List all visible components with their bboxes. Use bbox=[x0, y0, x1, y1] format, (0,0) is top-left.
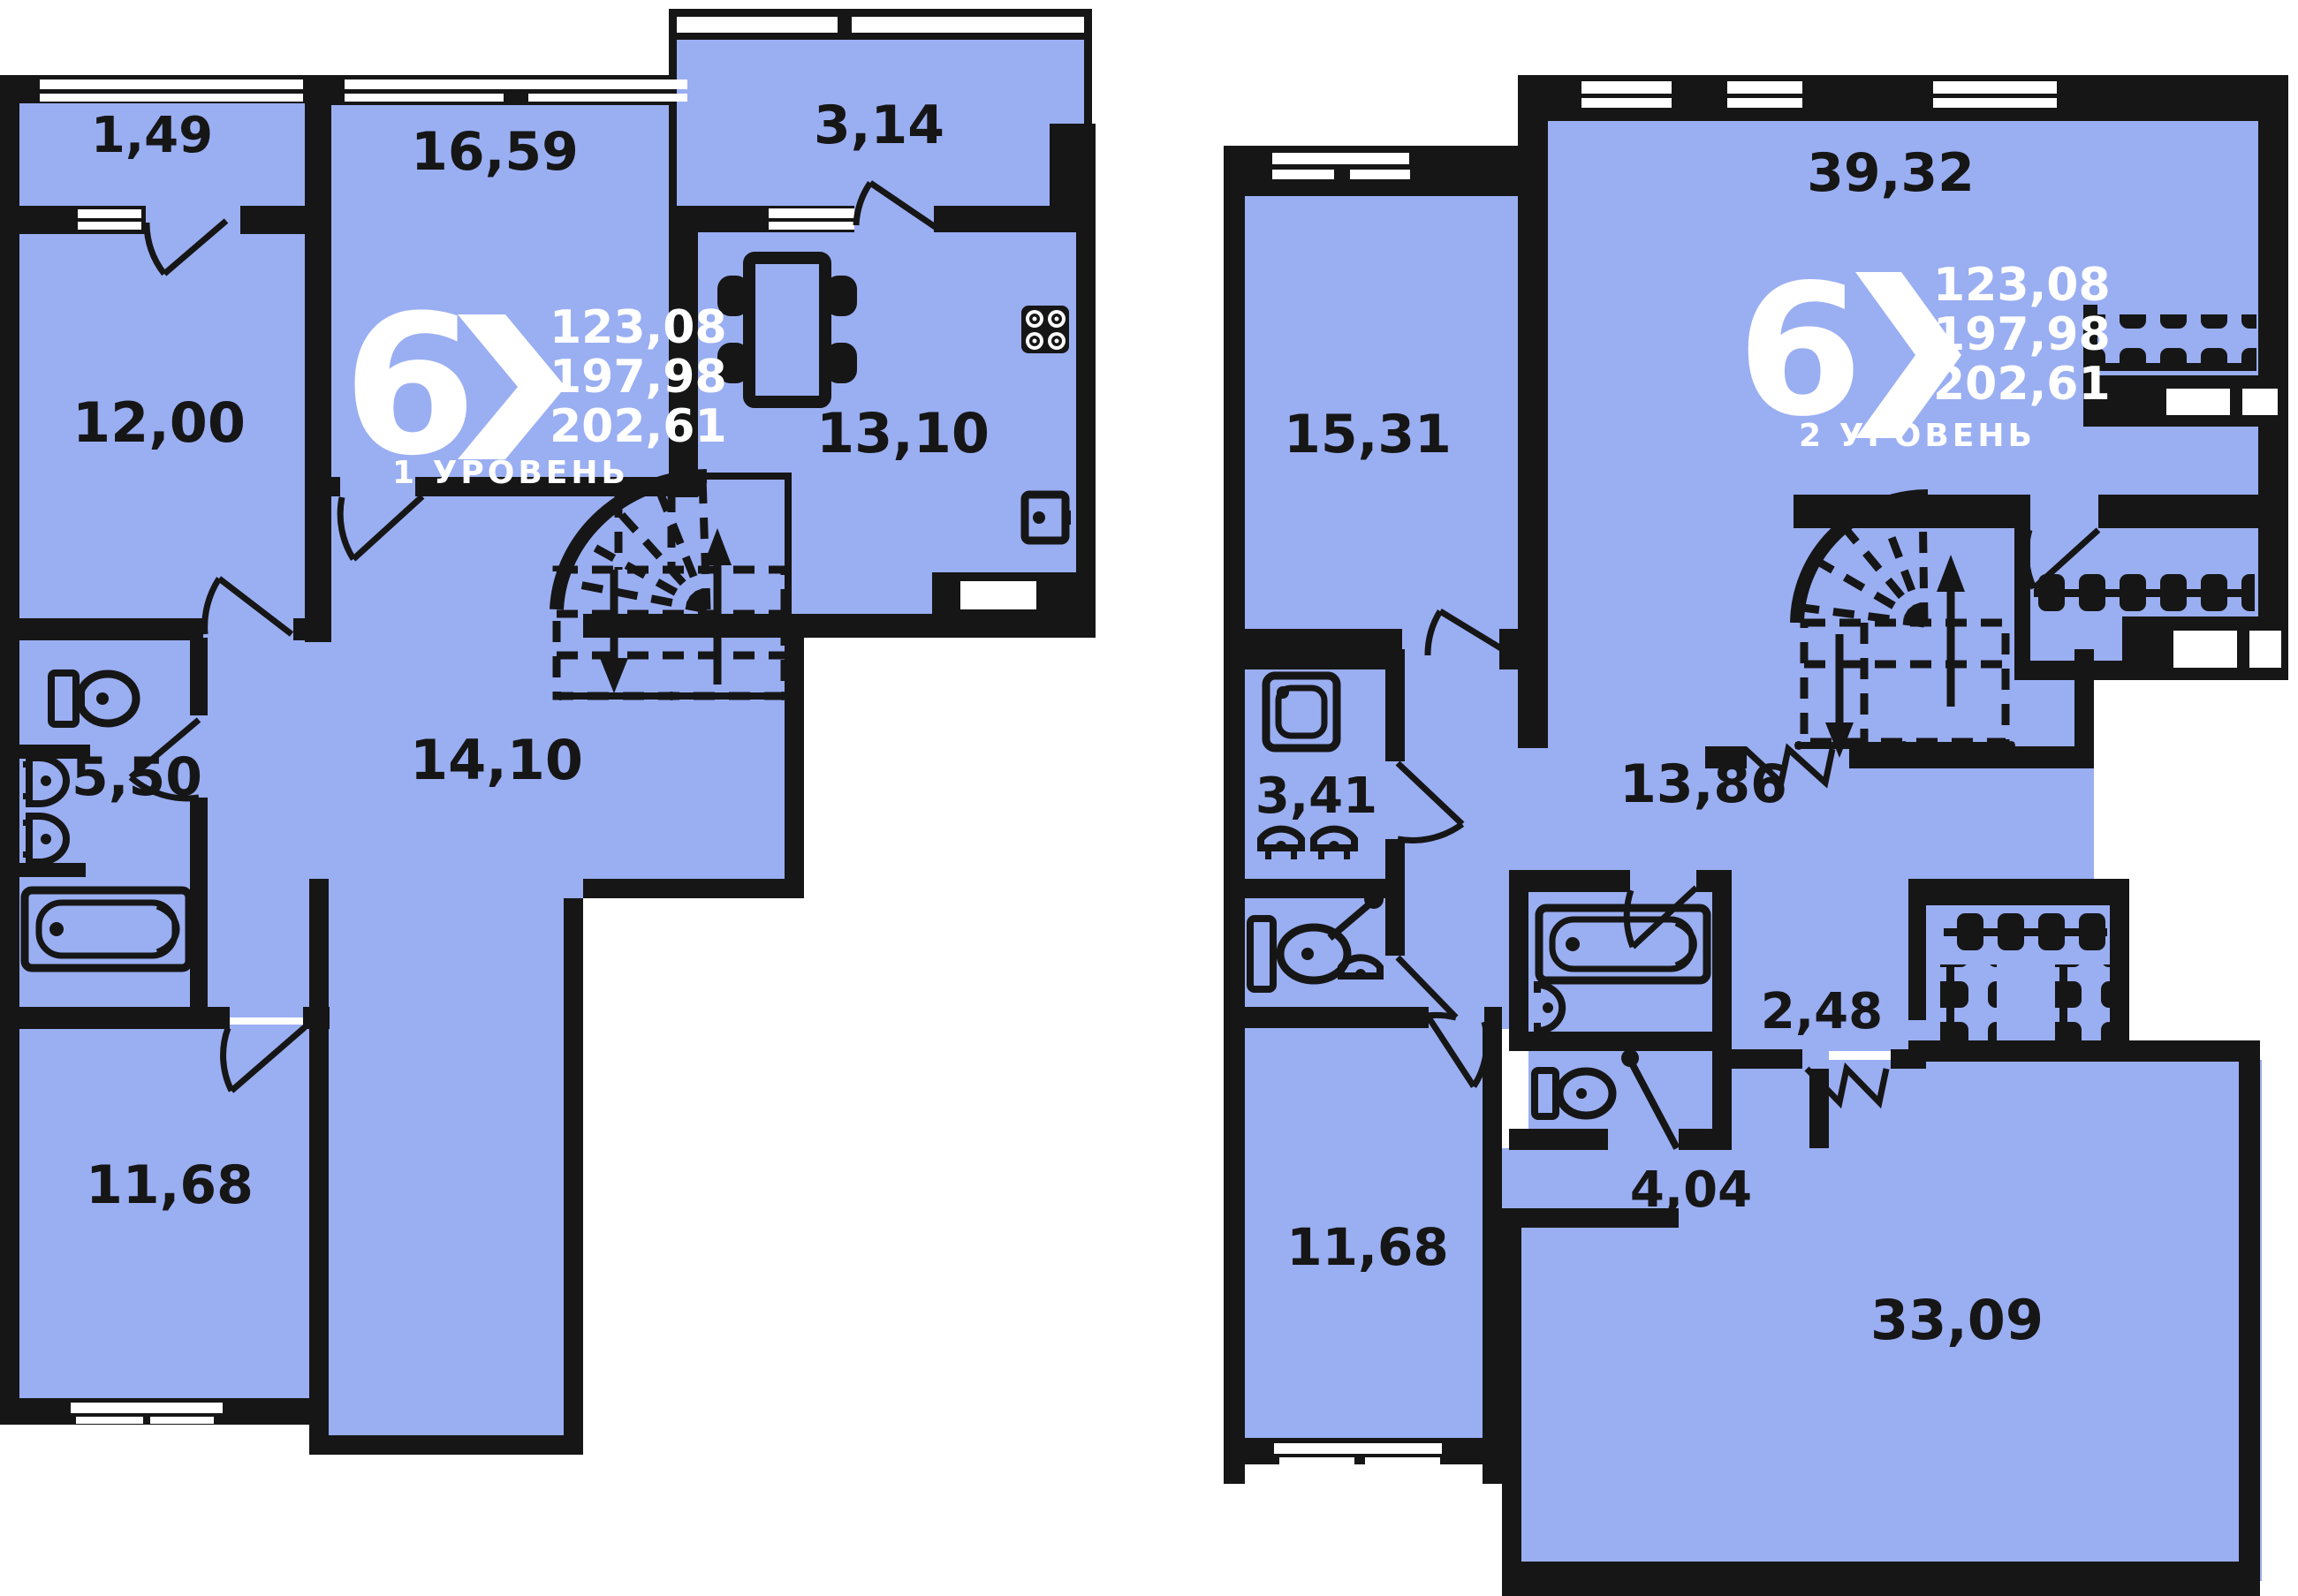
room-master bbox=[1502, 1228, 2262, 1581]
wardrobe-hangers-icon-living bbox=[2096, 314, 2256, 371]
floor-plan-level-1: 1,49 16,59 3,14 12,00 13,10 5,50 14,10 1… bbox=[0, 9, 1096, 1455]
logo2-line1: 123,08 bbox=[1933, 259, 2111, 312]
room-label-hallway: 14,10 bbox=[410, 728, 583, 792]
room-label-loggia: 3,14 bbox=[814, 95, 944, 156]
logo-level-label: 1 УРОВЕНЬ bbox=[392, 455, 629, 491]
floor-plan-canvas: 1,49 16,59 3,14 12,00 13,10 5,50 14,10 1… bbox=[0, 0, 2298, 1596]
logo2-line3: 202,61 bbox=[1933, 358, 2111, 411]
room-master-arm bbox=[1829, 1060, 2262, 1228]
room-label-bedroom-left: 12,00 bbox=[72, 390, 246, 455]
room-label-corridor248: 2,48 bbox=[1761, 983, 1883, 1040]
logo-line1: 123,08 bbox=[550, 301, 727, 354]
corridor-strip bbox=[190, 638, 309, 1017]
logo-line2: 197,98 bbox=[550, 351, 727, 404]
hall-to-bedroom bbox=[309, 898, 583, 1455]
room-label-living: 16,59 bbox=[411, 121, 579, 183]
room-label-hall2: 13,86 bbox=[1619, 753, 1787, 815]
room-label-master: 33,09 bbox=[1870, 1288, 2044, 1352]
stove-icon bbox=[1021, 306, 1069, 353]
floor-plan-page: 1,49 16,59 3,14 12,00 13,10 5,50 14,10 1… bbox=[0, 0, 2298, 1596]
room-label-hall404: 4,04 bbox=[1630, 1161, 1752, 1219]
floor-plan-level-2: 15,31 39,32 3,41 13,86 2,48 11,68 4,04 3… bbox=[1224, 75, 2288, 1596]
room-label-bedroom-bottom: 11,68 bbox=[86, 1154, 254, 1216]
logo2-line2: 197,98 bbox=[1933, 308, 2111, 361]
room-label-bedroom-bottom2: 11,68 bbox=[1286, 1217, 1448, 1277]
wardrobe-hangers-icon-top bbox=[2034, 555, 2255, 611]
room-bedroom-bottom bbox=[19, 1025, 309, 1419]
room-label-living2: 39,32 bbox=[1807, 142, 1975, 204]
room-label-bathroom: 5,50 bbox=[72, 746, 202, 808]
room-label-kitchen: 13,10 bbox=[816, 401, 990, 465]
logo-line3: 202,61 bbox=[550, 400, 727, 453]
room-label-balcony: 1,49 bbox=[91, 107, 213, 164]
room-label-shower: 3,41 bbox=[1255, 768, 1377, 825]
room-label-bedroom-left2: 15,31 bbox=[1284, 404, 1452, 465]
logo2-level-label: 2 УРОВЕНЬ bbox=[1799, 418, 2036, 454]
